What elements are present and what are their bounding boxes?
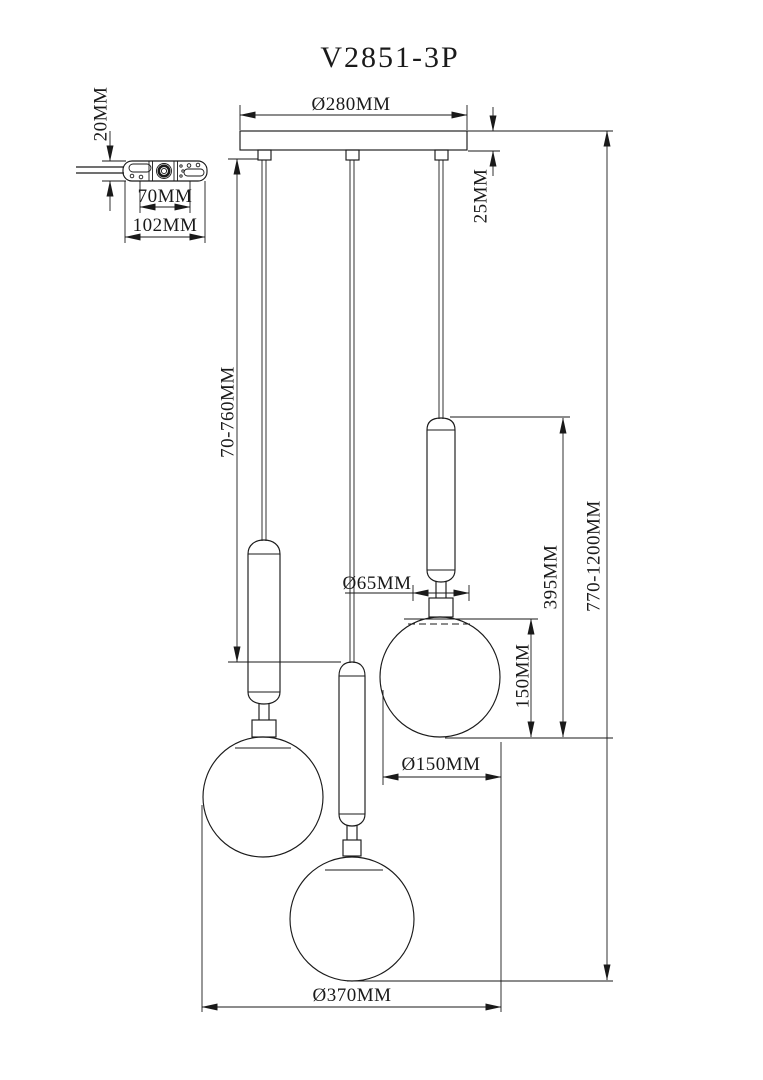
dim-label-canopy-diameter: Ø280MM xyxy=(311,94,390,115)
dim-label-stem-top-diameter: Ø65MM xyxy=(342,573,411,594)
dim-mount-thickness: 20MM xyxy=(91,87,127,211)
drawing-title: V2851-3P xyxy=(320,41,459,74)
mount-knockout-inner xyxy=(161,168,166,173)
globe-bottom xyxy=(290,857,414,981)
dim-label-cord-length: 70-760MM xyxy=(218,366,239,458)
dim-canopy-diameter: Ø280MM xyxy=(240,94,467,130)
dim-label-mount-length: 102MM xyxy=(133,215,198,236)
dim-cord-length: 70-760MM xyxy=(218,159,342,662)
side-view-mount-plate xyxy=(76,161,207,181)
dim-canopy-height: 25MM xyxy=(467,107,613,223)
mount-slot-left xyxy=(129,164,151,172)
dim-globe-height: 150MM xyxy=(404,619,538,737)
stem-left xyxy=(248,540,280,704)
globe-left xyxy=(203,737,323,857)
dim-label-globe-diameter: Ø150MM xyxy=(401,754,480,775)
dim-label-canopy-height: 25MM xyxy=(471,169,492,224)
canopy xyxy=(240,131,467,160)
dim-label-globe-height: 150MM xyxy=(513,644,534,709)
mount-hole xyxy=(196,163,200,167)
technical-drawing-page: V2851-3P 20MM xyxy=(0,0,763,1080)
dim-mount-hole-spacing: 70MM xyxy=(138,181,193,213)
globe-right xyxy=(380,617,500,737)
pendant-left xyxy=(203,540,323,857)
mount-dot xyxy=(180,175,182,177)
collar-middle xyxy=(343,840,361,856)
dim-label-mount-thickness: 20MM xyxy=(91,87,112,142)
dim-overall-height: 770-1200MM xyxy=(347,131,613,981)
collar-right xyxy=(429,598,453,617)
dim-label-mount-hole-spacing: 70MM xyxy=(138,186,193,207)
cord-grip-right xyxy=(435,150,448,160)
stem-middle xyxy=(339,662,365,826)
dim-label-overall-width: Ø370MM xyxy=(312,985,391,1006)
mount-dot xyxy=(180,165,182,167)
pendant-lamp-dimension-diagram: V2851-3P 20MM xyxy=(0,0,763,1080)
mount-slot-right xyxy=(184,169,204,176)
mount-knockout-ring xyxy=(159,166,169,176)
cord-grip-middle xyxy=(346,150,359,160)
dim-label-overall-height: 770-1200MM xyxy=(584,500,605,612)
collar-left xyxy=(252,720,276,737)
mount-hole xyxy=(187,164,191,168)
dim-label-pendant-drop: 395MM xyxy=(541,545,562,610)
mount-hole xyxy=(130,174,134,178)
pendant-middle xyxy=(290,662,414,981)
dim-stem-top-diameter: Ø65MM xyxy=(342,573,469,601)
stem-right xyxy=(427,418,455,582)
mount-hole xyxy=(139,175,143,179)
cord-grip-left xyxy=(258,150,271,160)
canopy-plate xyxy=(240,131,467,150)
